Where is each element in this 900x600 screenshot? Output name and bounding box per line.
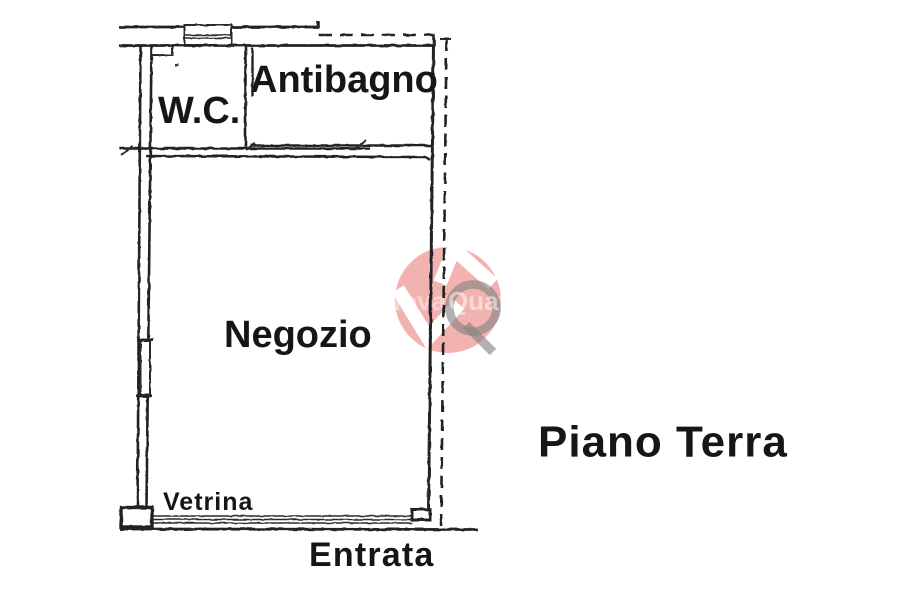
- svg-text:Quat: Quat: [448, 286, 508, 316]
- svg-text:Antibagno: Antibagno: [250, 59, 438, 101]
- svg-text:Vetrina: Vetrina: [163, 488, 253, 516]
- svg-text:Piano Terra: Piano Terra: [538, 418, 788, 467]
- svg-text:W.C.: W.C.: [158, 90, 240, 132]
- svg-text:Negozio: Negozio: [224, 314, 372, 356]
- svg-text:Nuova: Nuova: [367, 286, 447, 316]
- svg-text:Entrata: Entrata: [309, 536, 435, 574]
